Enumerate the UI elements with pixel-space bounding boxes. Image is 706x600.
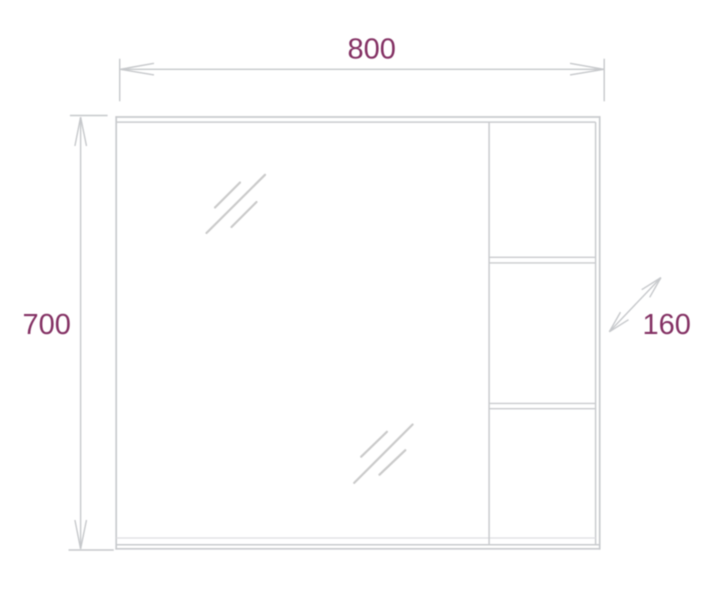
svg-text:700: 700 bbox=[23, 309, 71, 341]
svg-text:160: 160 bbox=[643, 309, 691, 341]
svg-text:800: 800 bbox=[348, 34, 396, 66]
